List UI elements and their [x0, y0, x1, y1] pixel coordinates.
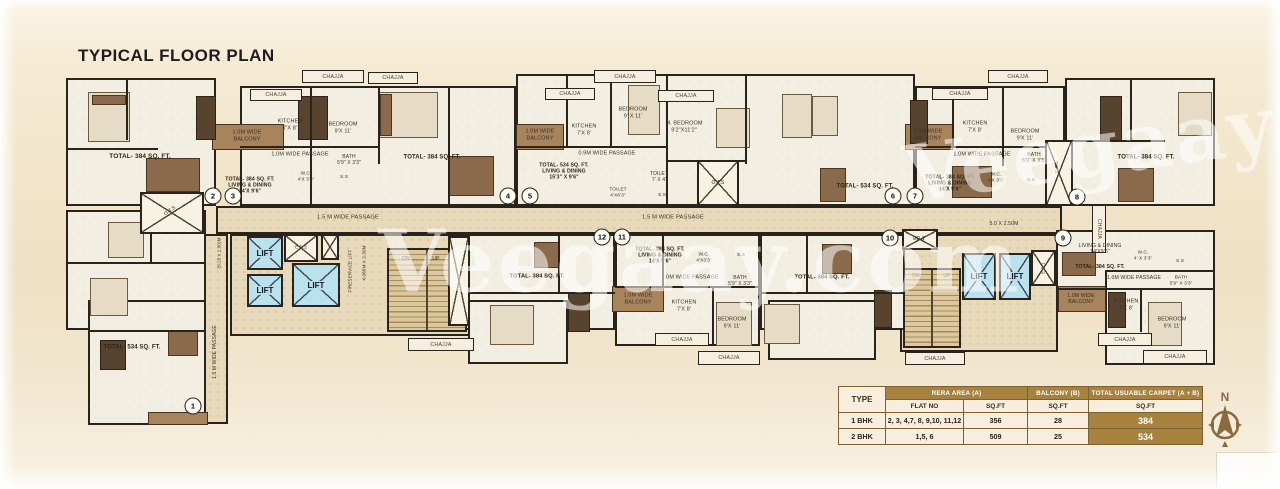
flat-number: 4	[500, 188, 517, 205]
flat-no-cell: 2, 3, 4,7, 8, 9,10, 11,12	[886, 413, 964, 429]
subheader-sqft: SQ.FT	[1028, 400, 1089, 413]
subheader-sqft: SQ.FT	[964, 400, 1028, 413]
lift-label: LIFT	[1006, 272, 1025, 281]
chajja-label: CHAJJA	[1114, 337, 1135, 343]
floor-plan-canvas: TYPICAL FLOOR PLAN LIFTLIFTLIFTLIFTLIFTC…	[0, 0, 1280, 489]
chajja-strip: CHAJJA	[408, 338, 474, 351]
room-label: 1.0M WIDE PASSAGE	[953, 152, 1010, 159]
chajja-label: CHAJJA	[671, 337, 692, 343]
flat-number: 3	[225, 188, 242, 205]
page-corner	[1216, 452, 1280, 489]
chajja-label: CHAJJA	[430, 342, 451, 348]
room-label: 1.0M WIDE PASSAGE	[271, 152, 328, 159]
furniture	[90, 278, 128, 316]
room-label: TOILET 4'X6'3"	[609, 187, 626, 199]
furniture	[490, 305, 534, 345]
room-label: E.D.2	[295, 244, 307, 249]
room-label: BATH 5'9" X 3'3"	[1022, 152, 1046, 164]
furniture	[448, 156, 494, 196]
room-label: 1.0M WIDE BALCONY	[232, 129, 261, 142]
flat-number: 6	[885, 188, 902, 205]
type-cell: 2 BHK	[839, 429, 886, 445]
room-label: O.T.S	[1055, 161, 1061, 174]
total-sqft-cell: 384	[1089, 413, 1203, 429]
room-label: 1.5 M WIDE PASSAGE	[212, 325, 218, 379]
wall	[126, 78, 128, 140]
room-label: BEDROOM 9'X 11'	[717, 316, 746, 329]
chajja-label: CHAJJA	[718, 355, 739, 361]
room-label: BATH 5'9" X 3'3"	[1170, 275, 1193, 287]
flat-number: 2	[205, 188, 222, 205]
room-label: O.T.S	[711, 180, 724, 186]
wall	[448, 86, 450, 206]
room-label: 0.9M WIDE PASSAGE	[578, 151, 635, 158]
page-title: TYPICAL FLOOR PLAN	[78, 46, 275, 66]
compass-n-label: N	[1221, 390, 1230, 404]
chajja-label: CHAJJA	[1096, 219, 1102, 239]
room-label: (5.25 x 2.30)M	[216, 237, 222, 268]
furniture	[782, 94, 812, 138]
chajja-label: CHAJJA	[675, 93, 696, 99]
room-label: DN	[402, 256, 409, 262]
flat-no-cell: 1,5, 6	[886, 429, 964, 445]
furniture	[168, 330, 198, 356]
col-header-type: TYPE	[839, 387, 886, 413]
chajja-label: CHAJJA	[559, 91, 580, 97]
room-label: TOILET 7' X 4'	[650, 171, 668, 183]
wall	[66, 262, 206, 264]
wall	[915, 146, 1065, 148]
duct-box	[448, 236, 470, 326]
table-row: 2 BHK1,5, 650925534	[839, 429, 1203, 445]
room-label: DN	[912, 273, 919, 279]
room-label: KITCHEN 7'X 8'	[963, 120, 988, 133]
room-label: 1.0M WIDE BALCONY	[913, 128, 942, 141]
lift-label: LIFT	[307, 281, 326, 290]
room-label: KITCHEN 7'X 8'	[278, 118, 303, 131]
room-label: W.C. 4' X 3'3"	[1134, 250, 1152, 262]
col-header-total-carpet: TOTAL USUABLE CARPET (A + B)	[1089, 387, 1203, 400]
room-label: BEDROOM 9' X 11'	[618, 106, 647, 119]
chajja-label: CHAJJA	[322, 74, 343, 80]
wall	[455, 292, 615, 294]
room-label: KITCHEN 7'X 8'	[572, 123, 597, 136]
wall	[558, 234, 560, 294]
lift: LIFT	[999, 253, 1031, 300]
chajja-label: CHAJJA	[1007, 74, 1028, 80]
room-label: TOTAL- 384 SQ. FT.	[1118, 154, 1175, 161]
chajja-label: CHAJJA	[614, 74, 635, 80]
flat-number: 9	[1055, 230, 1072, 247]
room-label: KITCHEN 7'X 8'	[1114, 298, 1139, 311]
chajja-strip: CHAJJA	[905, 352, 965, 365]
room-label: BEDROOM 9'X 11'	[1010, 128, 1039, 141]
furniture	[380, 94, 392, 136]
room-label: 1.0M WIDE PASSAGE	[661, 275, 718, 282]
furniture	[146, 158, 200, 192]
rera-sqft-cell: 509	[964, 429, 1028, 445]
flat-number: 11	[614, 229, 631, 246]
wall	[66, 148, 158, 150]
chajja-strip: CHAJJA	[1143, 350, 1207, 364]
staircase	[903, 268, 961, 348]
furniture	[874, 290, 892, 328]
room-label: 5.0 X 2.50M	[989, 221, 1018, 227]
room-label: LIVING & DINING 14'X9'6"	[1078, 243, 1121, 255]
wall	[1065, 140, 1165, 142]
room-label: S.S	[340, 175, 348, 181]
furniture	[92, 95, 126, 105]
chajja-strip: CHAJJA	[1098, 333, 1152, 346]
room-label: BEDROOM 9'X 11'	[1157, 316, 1186, 329]
lift-label: LIFT	[970, 272, 989, 281]
flat-number: 10	[882, 230, 899, 247]
chajja-strip: CHAJJA	[932, 88, 988, 100]
flat-number: 1	[185, 398, 202, 415]
room-label: 1.0M WIDE BALCONY	[623, 292, 652, 305]
room-label: KITCHEN 7'X 8'	[672, 299, 697, 312]
room-label: S.S	[1176, 259, 1184, 265]
wall	[806, 234, 808, 294]
chajja-label: CHAJJA	[265, 92, 286, 98]
room-label: 4.065M X 2.30M	[361, 245, 367, 280]
north-compass-icon: N	[1198, 388, 1252, 452]
rera-sqft-cell: 356	[964, 413, 1028, 429]
lift: LIFT	[962, 253, 996, 300]
room-label: UP	[432, 256, 439, 262]
chajja-strip: CHAJJA	[594, 70, 656, 83]
room-label: S.S	[658, 193, 666, 199]
subheader-flat-no: FLAT NO	[886, 400, 964, 413]
chajja-label: CHAJJA	[1164, 354, 1185, 360]
room-label: TOTAL- 384 SQ. FT.	[509, 274, 564, 281]
col-header-rera-area: RERA AREA (A)	[886, 387, 1028, 400]
wall	[712, 288, 714, 346]
wall	[240, 146, 380, 148]
room-label: TOTAL- 534 SQ. FT.	[104, 344, 161, 351]
room-label: TOTAL- 384 SQ. FT. LIVING & DINING 14'X …	[635, 247, 684, 266]
table-row: 1 BHK2, 3, 4,7, 8, 9,10, 11,1235628384	[839, 413, 1203, 429]
room-label: BEDROOM 9'X 11'	[328, 121, 357, 134]
room-label: S.S	[737, 253, 745, 259]
chajja-strip: CHAJJA	[698, 351, 760, 365]
room-label: S.S	[1027, 178, 1035, 184]
flat-number: 12	[594, 229, 611, 246]
room-label: M. BEDROOM 9'2"X11'2"	[665, 120, 702, 133]
room-label: BATH 5'9" X 3'3"	[728, 275, 752, 287]
lift: LIFT	[292, 263, 340, 307]
wall	[1140, 290, 1142, 332]
col-header-balcony: BALCONY (B)	[1028, 387, 1089, 400]
furniture	[108, 222, 144, 258]
room-label: TOTAL- 384 SQ. FT.	[109, 153, 171, 161]
chajja-strip: CHAJJA	[655, 333, 709, 346]
wall	[516, 146, 666, 148]
chajja-strip: CHAJJA	[302, 70, 364, 83]
room-label: W.C. 4'X3'3"	[696, 252, 711, 264]
area-table: TYPE RERA AREA (A) BALCONY (B) TOTAL USU…	[838, 386, 1203, 445]
room-label: BATH 5'9" X 3'3"	[337, 154, 361, 166]
chajja-label: CHAJJA	[949, 91, 970, 97]
chajja-strip: CHAJJA	[545, 88, 595, 100]
wall	[1056, 288, 1215, 290]
balcony-band	[148, 412, 208, 425]
chajja-strip: CHAJJA	[250, 89, 302, 101]
flat-number: 7	[907, 188, 924, 205]
wall	[745, 74, 747, 164]
room-label: TOTAL- 384 SQ. FT. LIVING & DINING 14'X …	[925, 175, 974, 194]
room-label: 1.0M WIDE PASSAGE	[1107, 275, 1161, 281]
furniture	[1118, 168, 1154, 202]
room-label: W.C. 4'X 3'3"	[298, 171, 315, 183]
lift: LIFT	[247, 274, 283, 307]
room-label: TOTAL- 384 SQ. FT.	[404, 154, 461, 161]
balcony-sqft-cell: 25	[1028, 429, 1089, 445]
furniture	[1100, 96, 1122, 142]
room-label: 1.5 M WIDE PASSAGE	[642, 215, 704, 222]
chajja-label: CHAJJA	[382, 75, 403, 81]
room-label: 1.5 M WIDE PASSAGE	[317, 215, 379, 222]
wall	[760, 292, 905, 294]
lift-label: LIFT	[256, 286, 275, 295]
room-label: UP	[943, 273, 950, 279]
room-label: W.C. 4'X 3'3"	[988, 172, 1005, 184]
lift: LIFT	[247, 236, 283, 270]
flat-number: 5	[522, 188, 539, 205]
room-label: E.D.1	[1040, 262, 1045, 274]
furniture	[822, 244, 852, 274]
furniture	[764, 304, 800, 344]
furniture	[298, 96, 328, 140]
furniture	[568, 292, 590, 332]
room-label: TOTAL- 534 SQ. FT.	[837, 183, 894, 190]
subheader-sqft: SQ.FT	[1089, 400, 1203, 413]
wall	[88, 330, 206, 332]
furniture	[534, 242, 560, 268]
lift-label: LIFT	[256, 249, 275, 258]
chajja-strip: CHAJJA	[988, 70, 1048, 83]
type-cell: 1 BHK	[839, 413, 886, 429]
furniture	[196, 96, 216, 140]
room-label: TOTAL- 384 SQ. FT.	[1075, 264, 1124, 270]
room-label: FIRESERVICE LIFT	[347, 250, 353, 293]
furniture	[1178, 92, 1212, 136]
duct-box	[321, 234, 339, 260]
room-label: 1.0M WIDE BALCONY	[1067, 293, 1094, 305]
flat-number: 8	[1069, 189, 1086, 206]
room-label: 1.0M WIDE BALCONY	[525, 128, 554, 141]
room-label: TOTAL- 384 SQ. FT.	[794, 275, 849, 282]
wall	[378, 86, 380, 164]
total-sqft-cell: 534	[1089, 429, 1203, 445]
balcony-sqft-cell: 28	[1028, 413, 1089, 429]
chajja-strip: CHAJJA	[368, 72, 418, 84]
chajja-label: CHAJJA	[924, 356, 945, 362]
room-label: TOTAL- 534 SQ. FT. LIVING & DINING 15'3"…	[539, 163, 588, 182]
wall	[566, 74, 568, 148]
furniture	[812, 96, 838, 136]
wall	[610, 74, 612, 148]
wall	[1130, 78, 1132, 140]
room-label: ED-1	[913, 236, 925, 242]
chajja-strip: CHAJJA	[658, 90, 714, 102]
